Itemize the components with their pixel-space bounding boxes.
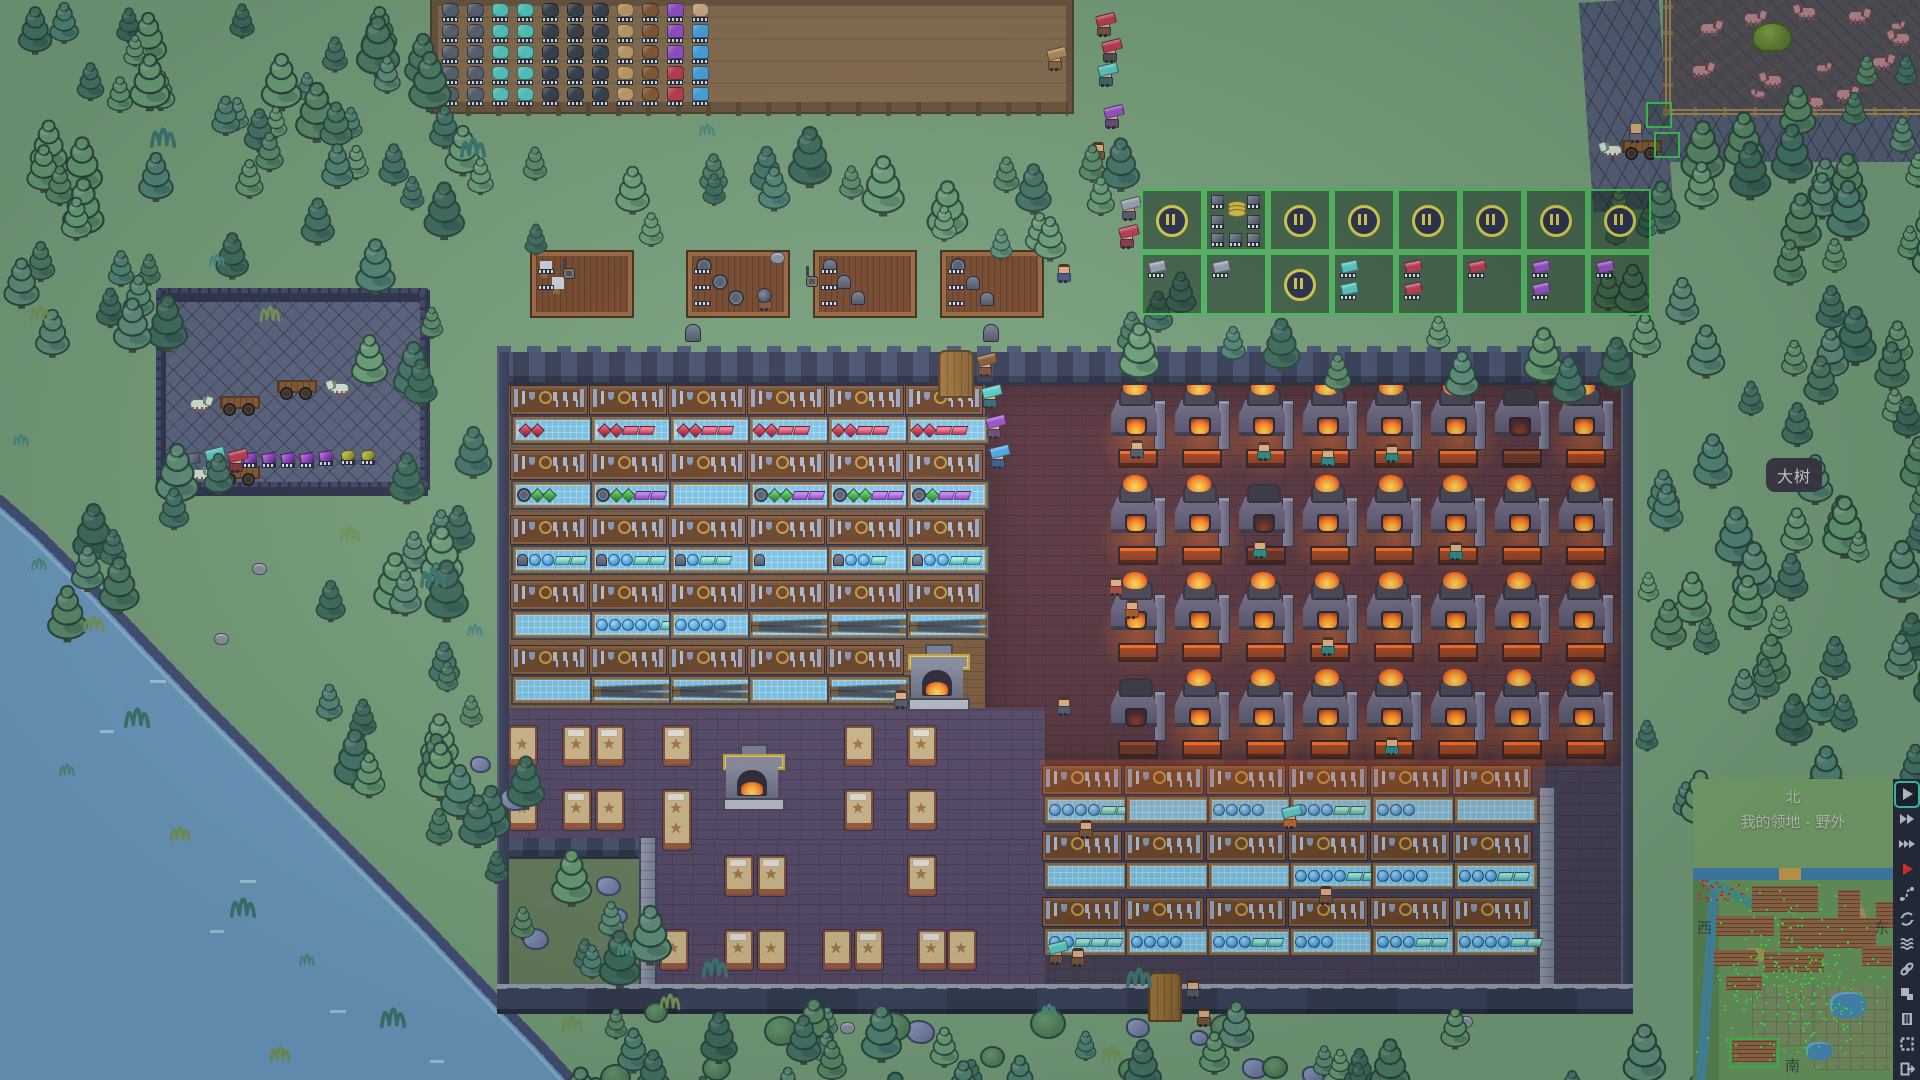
tree[interactable] — [352, 335, 387, 386]
tree[interactable] — [1004, 1056, 1036, 1080]
stock-progress-bar — [1247, 224, 1260, 229]
tree[interactable] — [1666, 278, 1698, 325]
production-cell[interactable] — [1333, 253, 1395, 315]
minimap-tree-dot — [1823, 982, 1825, 984]
minimap-tree-dot — [1839, 972, 1841, 974]
minimap-tree-dot — [1733, 964, 1735, 966]
tree[interactable] — [1816, 286, 1847, 330]
minimap-alert-dot — [1738, 884, 1740, 886]
stock-progress-bar — [1211, 242, 1224, 247]
tree[interactable] — [1624, 1025, 1666, 1080]
minimap-tree-dot — [1835, 895, 1837, 897]
grass-tuft — [1042, 1005, 1056, 1015]
tree[interactable] — [1102, 138, 1139, 191]
production-cell[interactable] — [1461, 253, 1523, 315]
minimap-buildings — [1726, 976, 1762, 990]
tree[interactable] — [1688, 325, 1724, 378]
tree[interactable] — [1124, 1040, 1161, 1080]
tree[interactable] — [421, 307, 443, 338]
tree[interactable] — [616, 167, 649, 215]
minimap-tree-dot — [1883, 976, 1885, 978]
minimap-label-south: 南 — [1785, 1055, 1800, 1076]
grass-tuft — [1103, 1047, 1121, 1061]
minimap-tree-dot — [1803, 996, 1805, 998]
tree[interactable] — [1630, 314, 1660, 357]
tree[interactable] — [108, 77, 133, 113]
minimap-tree-dot — [1791, 967, 1793, 969]
minimap-tree-dot — [1759, 892, 1761, 894]
layout-icon[interactable] — [1898, 985, 1916, 1003]
pause-icon — [1540, 205, 1572, 237]
tree[interactable] — [931, 1027, 959, 1067]
tree[interactable] — [1219, 1002, 1253, 1051]
minimap-tree-dot — [1840, 1013, 1842, 1015]
forest-layer — [0, 0, 1920, 1080]
tree[interactable] — [401, 176, 424, 210]
tree[interactable] — [456, 427, 492, 478]
minimap-tree-dot — [1760, 958, 1762, 960]
tree[interactable] — [863, 156, 904, 216]
tree[interactable] — [1823, 239, 1847, 273]
minimap-tree-dot — [1810, 978, 1812, 980]
minimap-tree-dot — [1763, 974, 1765, 976]
minimap-tree-dot — [1861, 1052, 1863, 1054]
play-icon[interactable] — [1898, 785, 1916, 803]
minimap-tree-dot — [1791, 941, 1793, 943]
production-cell[interactable] — [1269, 189, 1331, 251]
minimap-tree-dot — [1762, 954, 1764, 956]
minimap-lake — [1806, 1042, 1832, 1060]
minimap-label-west: 西 — [1697, 917, 1712, 938]
tree[interactable] — [552, 850, 591, 906]
minimap-tree-dot — [1834, 964, 1836, 966]
minimap-tree-dot — [1838, 1003, 1840, 1005]
minimap-tree-dot — [1729, 983, 1731, 985]
tree[interactable] — [1325, 354, 1351, 391]
frame-icon[interactable] — [1898, 1035, 1916, 1053]
minimap-tree-dot — [1801, 925, 1803, 927]
tree[interactable] — [1906, 153, 1920, 188]
tree[interactable] — [1772, 125, 1812, 183]
minimap-tree-dot — [1791, 938, 1793, 940]
minimap-tree-dot — [1836, 1020, 1838, 1022]
ingot-icon — [1468, 259, 1487, 273]
tree[interactable] — [77, 63, 103, 101]
production-cell[interactable] — [1205, 253, 1267, 315]
pause-icon — [1604, 205, 1636, 237]
tree[interactable] — [323, 37, 347, 72]
tree[interactable] — [1427, 316, 1450, 349]
tree[interactable] — [508, 756, 545, 809]
minimap-tree-dot — [1724, 1005, 1726, 1007]
stock-progress-bar — [1229, 242, 1242, 247]
minimap-tree-dot — [1731, 1027, 1733, 1029]
minimap-tree-dot — [1808, 982, 1810, 984]
minimap-tree-dot — [1821, 961, 1823, 963]
minimap-tree-dot — [1802, 1027, 1804, 1029]
minimap-alert-dot — [1712, 886, 1714, 888]
minimap-tree-dot — [1760, 935, 1762, 937]
minimap-tree-dot — [1749, 910, 1751, 912]
minimap-tree-dot — [1793, 913, 1795, 915]
minimap-alert-dot — [1710, 885, 1712, 887]
minimap-lake — [1830, 992, 1866, 1018]
tree[interactable] — [379, 144, 408, 186]
minimap-tree-dot — [1803, 977, 1805, 979]
tree[interactable] — [460, 696, 482, 728]
ingot-icon — [1404, 259, 1423, 273]
minimap-tree-dot — [1773, 984, 1775, 986]
tree[interactable] — [1831, 695, 1857, 732]
minimap-tree-dot — [1828, 975, 1830, 977]
tree[interactable] — [356, 239, 394, 294]
minimap-tree-dot — [1707, 1037, 1709, 1039]
exit-icon[interactable] — [1898, 1060, 1916, 1078]
game-viewport[interactable]: 大树 北 我的领地 - 野外 西 东 南 — [0, 0, 1920, 1080]
minimap-tree-dot — [1836, 983, 1838, 985]
tree[interactable] — [1896, 56, 1917, 86]
minimap-alert-dot — [1719, 886, 1721, 888]
minimap-tree-dot — [1853, 979, 1855, 981]
tree[interactable] — [485, 851, 507, 883]
minimap-tree-dot — [1815, 959, 1817, 961]
minimap-tree-dot — [1774, 917, 1776, 919]
minimap-tree-dot — [1818, 884, 1820, 886]
tree[interactable] — [994, 157, 1019, 193]
tree[interactable] — [1016, 164, 1051, 214]
minimap-buildings — [1716, 916, 1774, 936]
minimap-tree-dot — [1735, 968, 1737, 970]
tree[interactable] — [789, 127, 831, 188]
minimap-tree-dot — [1823, 996, 1825, 998]
tree[interactable] — [1782, 340, 1807, 376]
minimap-tree-dot — [1756, 957, 1758, 959]
production-cell[interactable] — [1397, 253, 1459, 315]
tree[interactable] — [1890, 117, 1915, 153]
minimap-tree-dot — [1753, 1005, 1755, 1007]
minimap-label-north: 北 — [1693, 786, 1893, 807]
tree[interactable] — [639, 213, 662, 247]
minimap-tree-dot — [1740, 899, 1742, 901]
tree[interactable] — [262, 54, 301, 111]
tree[interactable] — [302, 198, 334, 245]
minimap-tree-dot — [1777, 924, 1779, 926]
grass-tuft — [60, 765, 74, 775]
tree[interactable] — [874, 1073, 916, 1080]
production-cell[interactable] — [1525, 253, 1587, 315]
minimap-tree-dot — [1831, 1003, 1833, 1005]
minimap-map[interactable] — [1693, 880, 1893, 1080]
grass-tuft — [563, 1017, 581, 1031]
production-cell[interactable] — [1269, 253, 1331, 315]
minimap-tree-dot — [1756, 997, 1758, 999]
minimap-alert-dot — [1706, 880, 1708, 882]
minimap-tree-dot — [1813, 977, 1815, 979]
minimap-bridge — [1779, 868, 1801, 880]
minimap-tree-dot — [1835, 1007, 1837, 1009]
tree[interactable] — [204, 454, 232, 495]
minimap-tree-dot — [1838, 976, 1840, 978]
production-cell[interactable] — [1141, 189, 1203, 251]
minimap-tree-dot — [1763, 1023, 1765, 1025]
minimap-tree-dot — [1825, 963, 1827, 965]
minimap-tree-dot — [1765, 944, 1767, 946]
tree[interactable] — [605, 1009, 626, 1039]
tree[interactable] — [840, 166, 863, 199]
minimap-panel[interactable]: 北 我的领地 - 野外 西 东 南 — [1693, 779, 1893, 1080]
minimap-tree-dot — [1788, 1001, 1790, 1003]
minimap-tree-dot — [1821, 987, 1823, 989]
tree[interactable] — [1776, 694, 1811, 745]
fast-forward-3-icon[interactable] — [1898, 835, 1916, 853]
tree[interactable] — [1221, 326, 1245, 361]
stock-progress-bar — [1211, 224, 1224, 229]
minimap-tree-dot — [1745, 1002, 1747, 1004]
minimap-tree-dot — [1791, 970, 1793, 972]
minimap-tree-dot — [1760, 1022, 1762, 1024]
minimap-tree-dot — [1847, 941, 1849, 943]
minimap-tree-dot — [1801, 1006, 1803, 1008]
grass-tuft — [232, 899, 255, 916]
minimap-tree-dot — [1750, 998, 1752, 1000]
production-cell[interactable] — [1333, 189, 1395, 251]
stock-progress-bar — [1340, 295, 1356, 300]
tree[interactable] — [523, 147, 546, 180]
minimap-tree-dot — [1862, 1008, 1864, 1010]
pause-icon — [1348, 205, 1380, 237]
tree[interactable] — [1075, 1031, 1095, 1061]
minimap-tree-dot — [1844, 1007, 1846, 1009]
tree[interactable] — [1559, 1071, 1584, 1080]
minimap-tree-dot — [1760, 944, 1762, 946]
minimap-tree-dot — [1783, 1050, 1785, 1052]
minimap-tree-dot — [1756, 950, 1758, 952]
production-cell[interactable] — [1141, 253, 1203, 315]
minimap-tree-dot — [1755, 959, 1757, 961]
production-cell[interactable] — [1461, 189, 1523, 251]
tree[interactable] — [1739, 381, 1763, 416]
film-icon[interactable] — [1898, 1010, 1916, 1028]
minimap-tree-dot — [1843, 987, 1845, 989]
minimap-alert-dot — [1741, 893, 1743, 895]
grass-tuft — [261, 307, 279, 321]
tree[interactable] — [991, 229, 1012, 260]
minimap-tree-dot — [1807, 968, 1809, 970]
minimap-tree-dot — [1776, 976, 1778, 978]
stock-progress-bar — [1404, 295, 1420, 300]
production-cell[interactable] — [1397, 189, 1459, 251]
minimap-tree-dot — [1860, 992, 1862, 994]
minimap-alert-dot — [1721, 891, 1723, 893]
tree[interactable] — [862, 1006, 901, 1063]
stock-progress-bar — [1596, 273, 1612, 278]
tree[interactable] — [316, 581, 345, 622]
minimap-alert-dot — [1698, 898, 1700, 900]
tree[interactable] — [317, 684, 342, 721]
minimap-tree-dot — [1832, 1009, 1834, 1011]
tree[interactable] — [1820, 637, 1850, 680]
tree[interactable] — [100, 557, 139, 613]
minimap-tree-dot — [1781, 985, 1783, 987]
minimap-alert-dot — [1716, 882, 1718, 884]
production-cell[interactable] — [1589, 253, 1651, 315]
minimap-tree-dot — [1782, 973, 1784, 975]
minimap-alert-dot — [1698, 894, 1700, 896]
minimap-alert-dot — [1706, 897, 1708, 899]
minimap-tree-dot — [1763, 966, 1765, 968]
stock-progress-bar — [1340, 273, 1356, 278]
tree[interactable] — [19, 7, 52, 54]
tree[interactable] — [1856, 56, 1877, 87]
hover-tooltip: 大树 — [1766, 458, 1822, 492]
tree[interactable] — [775, 1067, 800, 1080]
pause-icon — [1412, 205, 1444, 237]
minimap-label-east: 东 — [1874, 917, 1889, 938]
minimap-tree-dot — [1746, 999, 1748, 1001]
tree[interactable] — [512, 907, 535, 940]
minimap-tree-dot — [1746, 888, 1748, 890]
minimap-tree-dot — [1786, 988, 1788, 990]
tree[interactable] — [139, 153, 173, 202]
minimap-tree-dot — [1850, 988, 1852, 990]
pause-icon — [1476, 205, 1508, 237]
tree[interactable] — [424, 183, 463, 240]
pause-icon — [1156, 205, 1188, 237]
minimap-tree-dot — [1821, 919, 1823, 921]
minimap-tree-dot — [1819, 968, 1821, 970]
cycle-icon[interactable] — [1898, 910, 1916, 928]
tree[interactable] — [1371, 1039, 1410, 1080]
grass-tuft — [32, 559, 46, 569]
tree[interactable] — [1441, 1008, 1469, 1049]
minimap-tree-dot — [1751, 974, 1753, 976]
minimap-tree-dot — [1753, 916, 1755, 918]
minimap-tree-dot — [1781, 922, 1783, 924]
sidebar-toolbar — [1893, 779, 1920, 1080]
tree[interactable] — [50, 3, 78, 44]
production-cell[interactable] — [1589, 189, 1651, 251]
tree[interactable] — [1775, 554, 1808, 601]
tree[interactable] — [1916, 188, 1920, 239]
link-icon[interactable] — [1898, 960, 1916, 978]
tree[interactable] — [1446, 351, 1479, 398]
minimap-tree-dot — [1872, 958, 1874, 960]
ingot-icon — [1148, 259, 1167, 273]
tree[interactable] — [525, 224, 547, 255]
tree[interactable] — [322, 144, 353, 189]
minimap-tree-dot — [1797, 925, 1799, 927]
grass-tuft — [700, 125, 714, 135]
tree[interactable] — [48, 586, 87, 642]
minimap-tree-dot — [1696, 1051, 1698, 1053]
tree[interactable] — [1782, 403, 1812, 447]
minimap-tree-dot — [1785, 970, 1787, 972]
tree[interactable] — [36, 310, 69, 358]
tree[interactable] — [1781, 508, 1812, 553]
minimap-tree-dot — [1792, 981, 1794, 983]
minimap-tree-dot — [1841, 928, 1843, 930]
minimap-tree-dot — [1796, 958, 1798, 960]
minimap-tree-dot — [1801, 986, 1803, 988]
minimap-tree-dot — [1814, 994, 1816, 996]
tree[interactable] — [389, 453, 424, 504]
tree[interactable] — [701, 1012, 737, 1063]
minimap-tree-dot — [1737, 963, 1739, 965]
stock-progress-bar — [1532, 273, 1548, 278]
grass-tuft — [468, 625, 482, 635]
waves-icon[interactable] — [1898, 935, 1916, 953]
minimap-tree-dot — [1841, 1010, 1843, 1012]
minimap-tree-dot — [1778, 942, 1780, 944]
minimap-tree-dot — [1786, 991, 1788, 993]
minimap-region-title: 我的领地 - 野外 — [1693, 811, 1893, 832]
tree[interactable] — [1901, 437, 1920, 490]
tree[interactable] — [1843, 92, 1866, 125]
minimap-buildings — [1780, 918, 1876, 948]
tree[interactable] — [216, 233, 248, 279]
route-icon[interactable] — [1898, 885, 1916, 903]
minimap-tree-dot — [1876, 1000, 1878, 1002]
minimap-tree-dot — [1866, 927, 1868, 929]
minimap-tree-dot — [1757, 985, 1759, 987]
minimap-tree-dot — [1822, 964, 1824, 966]
minimap-tree-dot — [1861, 1001, 1863, 1003]
minimap-tree-dot — [1801, 1013, 1803, 1015]
stock-progress-bar — [1211, 204, 1224, 209]
minimap-tree-dot — [1809, 962, 1811, 964]
tree[interactable] — [1638, 573, 1658, 602]
production-cell[interactable] — [1525, 189, 1587, 251]
grass-tuft — [271, 1047, 289, 1061]
minimap-tree-dot — [1836, 962, 1838, 964]
minimap-tree-dot — [1778, 985, 1780, 987]
tree[interactable] — [1263, 319, 1299, 372]
tree[interactable] — [1694, 434, 1731, 488]
minimap-alert-dot — [1720, 894, 1722, 896]
tree[interactable] — [1636, 720, 1657, 751]
minimap-tree-dot — [1795, 993, 1797, 995]
minimap-tree-dot — [1763, 984, 1765, 986]
minimap-tree-dot — [1736, 990, 1738, 992]
fast-forward-2-icon[interactable] — [1898, 810, 1916, 828]
minimap-tree-dot — [1808, 956, 1810, 958]
minimap-tree-dot — [1794, 1013, 1796, 1015]
minimap-tree-dot — [1800, 990, 1802, 992]
coin-stack-icon — [1228, 209, 1246, 217]
minimap-tree-dot — [1796, 965, 1798, 967]
minimap-tree-dot — [1825, 1019, 1827, 1021]
tree[interactable] — [230, 4, 254, 39]
minimap-tree-dot — [1837, 945, 1839, 947]
tree[interactable] — [1694, 618, 1719, 655]
minimap-tree-dot — [1869, 976, 1871, 978]
tree[interactable] — [692, 1076, 713, 1080]
minimap-alert-dot — [1708, 889, 1710, 891]
minimap-tree-dot — [1817, 985, 1819, 987]
tree[interactable] — [109, 251, 134, 287]
stock-progress-bar — [1468, 273, 1484, 278]
minimap-tree-dot — [1805, 1040, 1807, 1042]
minimap-tree-dot — [1843, 1028, 1845, 1030]
production-cell[interactable] — [1205, 189, 1267, 251]
minimap-tree-dot — [1770, 957, 1772, 959]
minimap-tree-dot — [1750, 956, 1752, 958]
minimap-tree-dot — [1795, 971, 1797, 973]
stock-progress-bar — [1247, 242, 1260, 247]
play-red-icon[interactable] — [1898, 860, 1916, 878]
minimap-tree-dot — [1850, 1012, 1852, 1014]
ingot-icon — [1404, 281, 1423, 295]
